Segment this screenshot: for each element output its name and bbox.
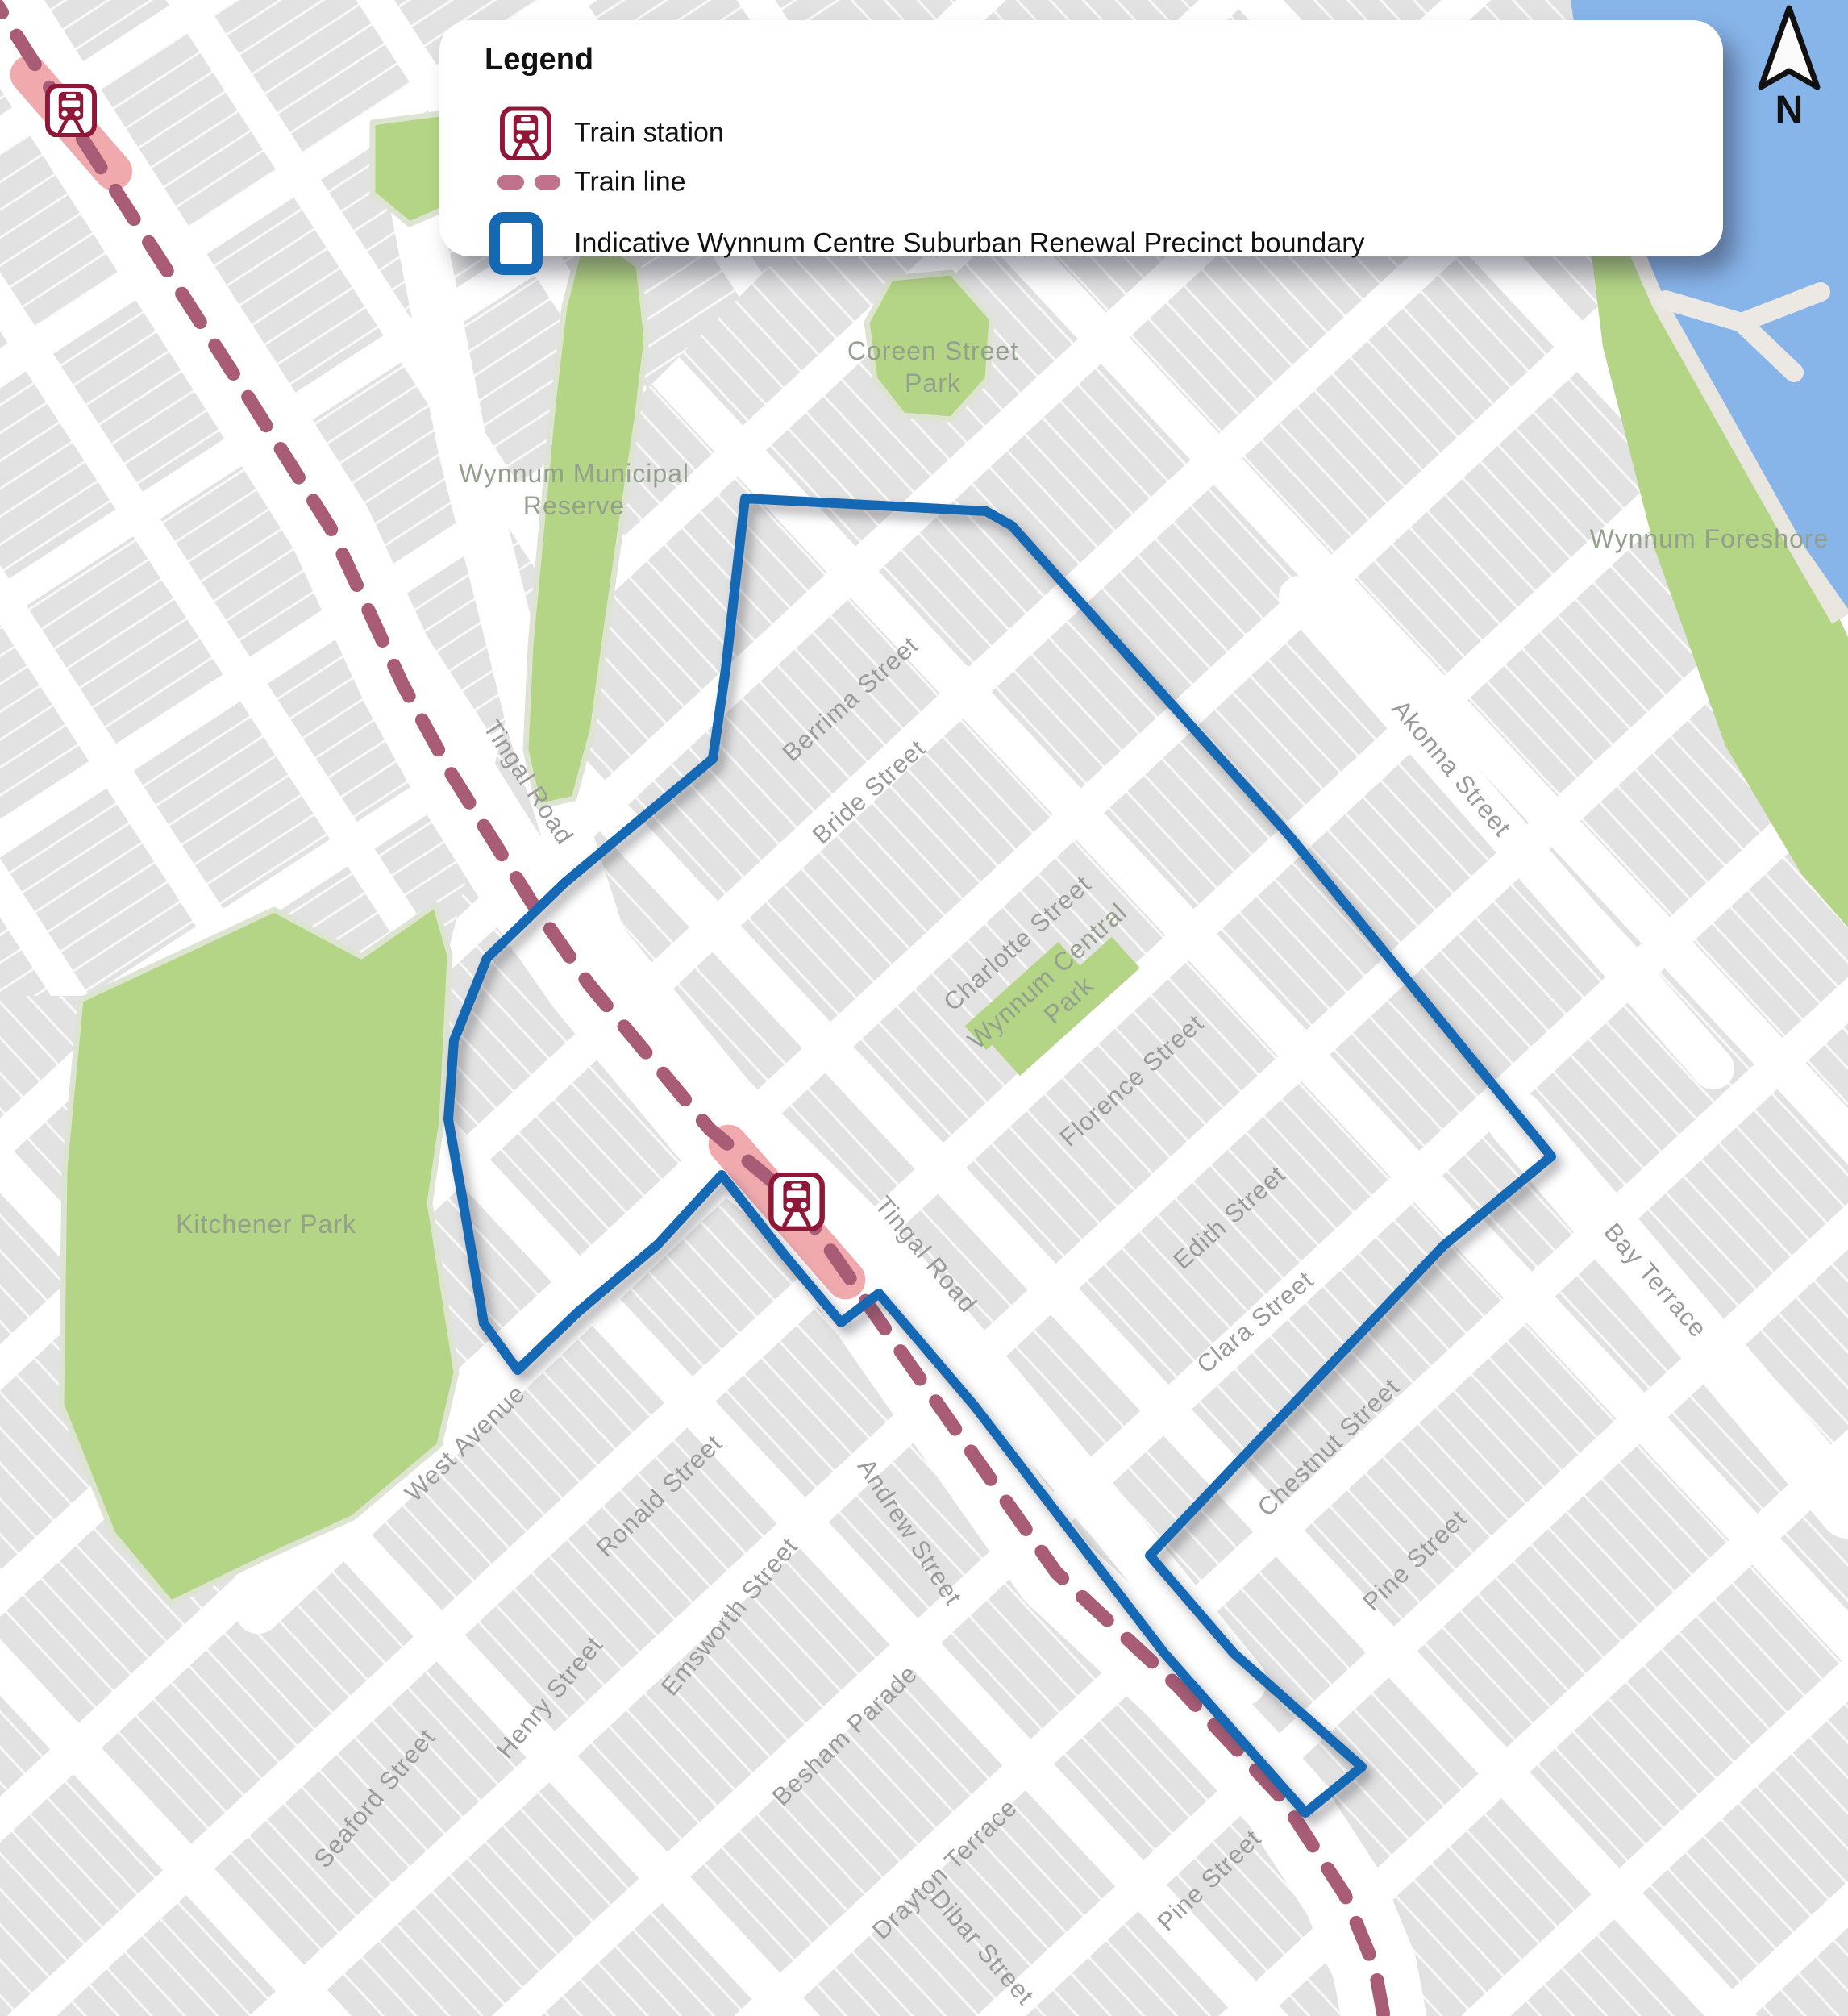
akonna-street-path: [1300, 597, 1713, 1068]
legend-item-train-station: Train station: [574, 118, 724, 149]
map-graphics: [0, 0, 1848, 2016]
north-arrow: N: [1734, 0, 1848, 137]
train-line-icon: [497, 175, 560, 190]
legend-panel: Legend Train station Train line Indicati…: [439, 20, 1723, 256]
park-label: Coreen Street Park: [839, 335, 1028, 399]
park-label: Wynnum Foreshore: [1548, 523, 1848, 555]
legend-item-boundary: Indicative Wynnum Centre Suburban Renewa…: [574, 228, 1365, 260]
north-arrow-icon: [1761, 8, 1817, 87]
legend-title: Legend: [485, 43, 593, 77]
legend-item-train-line: Train line: [574, 167, 686, 198]
north-label: N: [1775, 89, 1804, 131]
train-station-icon: [48, 85, 94, 135]
municipal-reserve-shape: [526, 238, 647, 806]
train-station-icon: [499, 104, 552, 163]
boundary-swatch-icon: [489, 212, 543, 275]
park-label: Kitchener Park: [137, 1208, 395, 1240]
park-label: Wynnum Municipal Reserve: [439, 457, 710, 522]
wynnum-precinct-map: Coreen Street Park Wynnum Municipal Rese…: [0, 0, 1848, 2016]
train-station-icon: [771, 1174, 822, 1229]
